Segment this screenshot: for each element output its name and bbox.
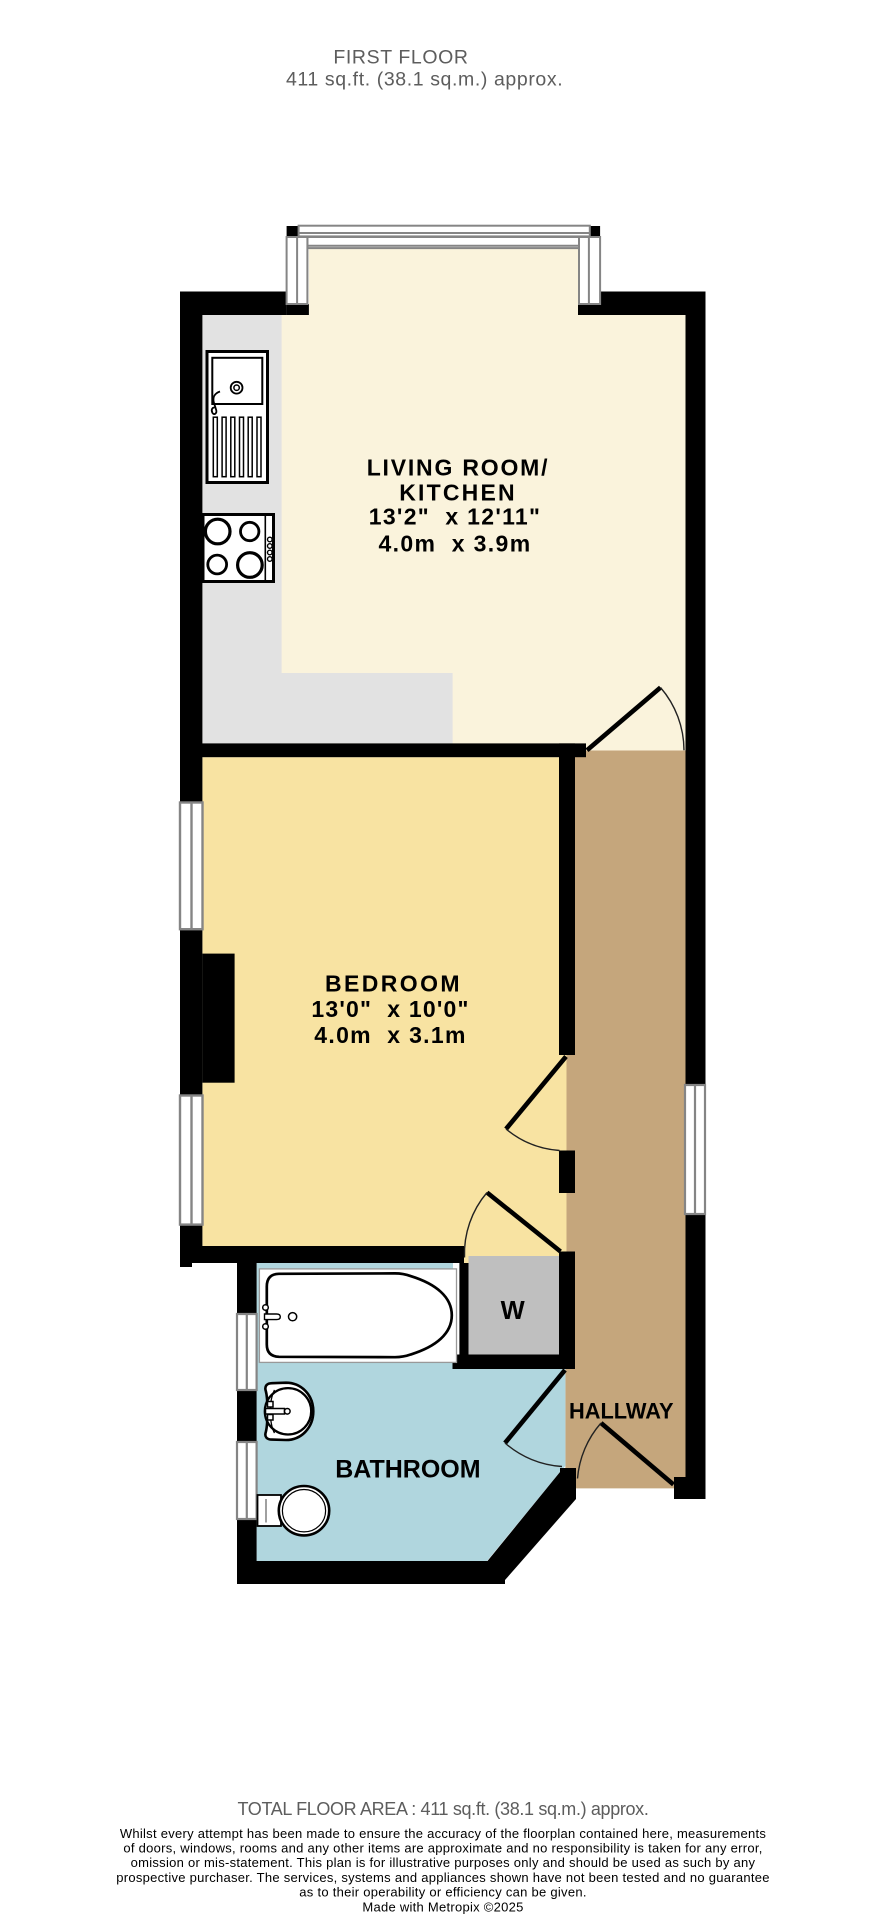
svg-text:4.0m x 3.1m: 4.0m x 3.1m [314, 1022, 466, 1048]
svg-text:TOTAL FLOOR AREA : 411 sq.ft.: TOTAL FLOOR AREA : 411 sq.ft. (38.1 sq.m… [237, 1799, 648, 1819]
svg-text:4.0m x 3.9m: 4.0m x 3.9m [378, 531, 531, 557]
svg-text:13'0" x 10'0": 13'0" x 10'0" [311, 996, 469, 1022]
svg-text:13'2" x 12'11": 13'2" x 12'11" [369, 504, 541, 530]
svg-text:of doors, windows, rooms and a: of doors, windows, rooms and any other i… [123, 1841, 762, 1856]
svg-text:prospective purchaser. The ser: prospective purchaser. The services, sys… [116, 1870, 769, 1885]
svg-text:omission or mis-statement. Thi: omission or mis-statement. This plan is … [131, 1855, 756, 1870]
svg-text:HALLWAY: HALLWAY [569, 1399, 674, 1424]
svg-text:Whilst every attempt has been: Whilst every attempt has been made to en… [120, 1826, 767, 1841]
svg-text:BEDROOM: BEDROOM [325, 971, 462, 997]
svg-text:FIRST FLOOR: FIRST FLOOR [333, 47, 468, 69]
svg-text:as to their operability or eff: as to their operability or efficiency ca… [299, 1885, 586, 1900]
svg-text:W: W [501, 1297, 526, 1325]
svg-text:411 sq.ft. (38.1 sq.m.) approx: 411 sq.ft. (38.1 sq.m.) approx. [286, 68, 563, 90]
svg-text:KITCHEN: KITCHEN [399, 479, 517, 505]
svg-text:BATHROOM: BATHROOM [335, 1456, 480, 1484]
svg-text:LIVING ROOM/: LIVING ROOM/ [367, 455, 550, 481]
svg-text:Made with Metropix ©2025: Made with Metropix ©2025 [362, 1899, 523, 1914]
